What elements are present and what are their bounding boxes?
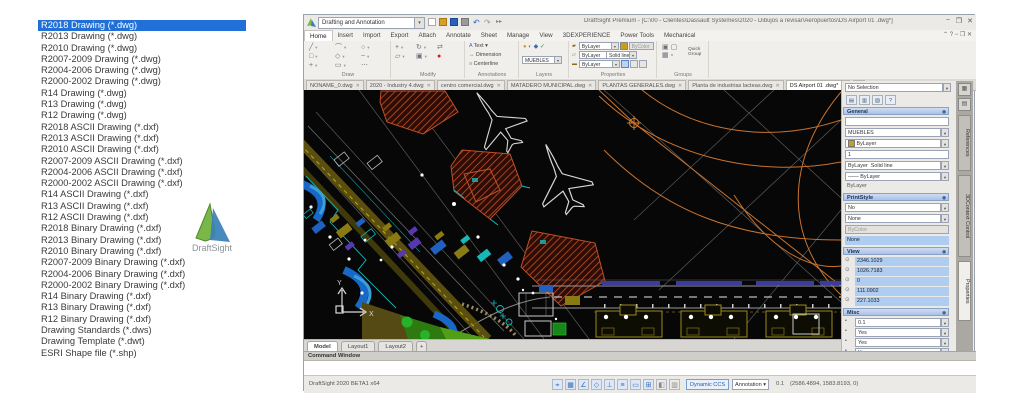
extra-bylayer-text: ByLayer xyxy=(847,183,867,189)
tab-power-tools[interactable]: Power Tools xyxy=(615,30,659,41)
vtab-properties[interactable]: Properties xyxy=(958,261,971,321)
lineweight-field-caret-icon[interactable] xyxy=(941,172,949,181)
misc-yes-field-2[interactable]: Yes xyxy=(855,338,941,347)
tab-3dexperience[interactable]: 3DEXPERIENCE xyxy=(558,30,616,41)
misc-row-icon: ▪ xyxy=(845,338,854,344)
delete-tool-icon[interactable]: ● xyxy=(437,52,458,61)
group-edit-icon[interactable]: ▢ xyxy=(671,44,678,51)
format-option[interactable]: R12 Drawing (*.dwg) xyxy=(38,110,250,121)
view-center-z: 0 xyxy=(855,277,949,286)
printstyle-row-3: ByColor xyxy=(845,225,949,234)
section-misc[interactable]: Misc xyxy=(843,308,949,316)
property-toggle-3-icon[interactable] xyxy=(639,60,647,68)
format-option[interactable]: R2007-2009 Binary Drawing (*.dxf) xyxy=(38,257,250,268)
minimize-button[interactable]: − xyxy=(946,17,950,24)
vtab-references[interactable]: References xyxy=(958,115,971,171)
command-window-header[interactable]: Command Window xyxy=(304,351,976,360)
circle-tool-icon[interactable]: ○ ▾ xyxy=(361,43,387,52)
trim-tool-icon[interactable]: ▣ ▾ xyxy=(416,52,437,61)
printstyle-row-2[interactable]: None xyxy=(845,214,941,223)
group-create-icon[interactable]: ▣ xyxy=(662,44,669,51)
groups-group-label: Groups xyxy=(658,72,708,78)
format-option[interactable]: R2013 Drawing (*.dwg) xyxy=(38,31,250,42)
bycolor-field: ByColor xyxy=(629,42,654,50)
format-option[interactable]: R13 Binary Drawing (*.dxf) xyxy=(38,302,250,313)
quick-group-button[interactable]: Quick Group xyxy=(688,47,708,57)
view-row-icon: ⊙ xyxy=(845,257,854,263)
lineweight-dropdown[interactable]: ByLayer xyxy=(579,60,613,68)
close-button[interactable]: ✕ xyxy=(967,17,973,25)
section-printstyle[interactable]: PrintStyle xyxy=(843,193,949,201)
app-logo-icon xyxy=(306,17,317,28)
format-option[interactable]: R14 Drawing (*.dwg) xyxy=(38,88,250,99)
misc-caret-1-icon[interactable] xyxy=(941,318,949,327)
format-option[interactable]: R2010 Drawing (*.dwg) xyxy=(38,43,250,54)
grid-toggle-icon[interactable]: ▦ xyxy=(565,379,576,390)
product-version-text: DraftSight 2020 BETA1 x64 xyxy=(309,381,380,387)
view-height: 111.0902 xyxy=(855,287,949,296)
tab-close-icon[interactable] xyxy=(497,83,501,89)
lineweight-caret-icon[interactable]: ▾ xyxy=(613,60,620,68)
open-file-icon[interactable] xyxy=(439,18,447,26)
polygon-tool-icon[interactable]: ◇ ▾ xyxy=(335,52,361,61)
layer-freeze-icon[interactable]: ◐ xyxy=(528,44,532,50)
format-option[interactable]: R2004-2006 Drawing (*.dwg) xyxy=(38,65,250,76)
format-option[interactable]: R2000-2002 ASCII Drawing (*.dxf) xyxy=(38,178,250,189)
format-option[interactable]: R2007-2009 Drawing (*.dwg) xyxy=(38,54,250,65)
tab-close-icon[interactable] xyxy=(356,83,360,89)
point-tool-icon[interactable]: + ▾ xyxy=(309,61,335,70)
clear-selection-icon[interactable]: ▧ xyxy=(872,95,883,105)
redo-icon[interactable]: ↷ xyxy=(484,17,491,28)
workspace-dropdown[interactable]: Drafting and Annotation xyxy=(318,17,419,29)
view-width: 227.1033 xyxy=(855,297,949,306)
title-bar: Drafting and Annotation ▾ ↶ ↷ ▸▸ DraftSi… xyxy=(304,15,976,31)
draftsight-logo: DraftSight xyxy=(188,200,244,256)
section-general[interactable]: General xyxy=(843,107,949,115)
ribbon-group-groups: ▣ ▢ ▦ ▫ Quick Group Groups xyxy=(658,41,709,78)
view-row-icon: ⊙ xyxy=(845,287,854,293)
lineweight-icon: ▬ xyxy=(572,61,579,67)
view-row-icon: ⊙ xyxy=(845,297,854,303)
linecolor-caret-icon[interactable]: ▾ xyxy=(612,42,619,50)
tab-sheet[interactable]: Sheet xyxy=(476,30,502,41)
format-option[interactable]: R2000-2002 Drawing (*.dwg) xyxy=(38,76,250,87)
scale-readout: 0.1 xyxy=(776,381,784,387)
mirror-tool-icon[interactable]: ⇄ xyxy=(437,43,458,52)
tab-close-icon[interactable] xyxy=(775,83,779,89)
section-view[interactable]: View xyxy=(843,247,949,255)
polar-toggle-icon[interactable]: ◇ xyxy=(591,379,602,390)
move-tool-icon[interactable]: + ▾ xyxy=(395,43,416,52)
centerline-tool-button[interactable]: ≡ Centerline xyxy=(469,61,518,70)
tab-export[interactable]: Export xyxy=(386,30,414,41)
misc-row-icon: ▪ xyxy=(845,318,854,324)
rotate-tool-icon[interactable]: ↻ ▾ xyxy=(416,43,437,52)
ribbon: ╱ ▾ ⌒ ▾ ○ ▾ □ ▾ ◇ ▾ ~ ▾ + ▾ ▭ ▾ ⋯ Draw +… xyxy=(304,41,976,80)
command-input[interactable] xyxy=(304,360,976,376)
format-option[interactable]: R2018 ASCII Drawing (*.dxf) xyxy=(38,122,250,133)
window-title: DraftSight Premium - [C:\00 - Clientes\D… xyxy=(584,18,914,24)
file-format-list: R2018 Drawing (*.dwg) R2013 Drawing (*.d… xyxy=(38,20,250,359)
linecolor-dropdown[interactable]: ByLayer xyxy=(579,42,612,50)
format-option[interactable]: R2004-2006 ASCII Drawing (*.dxf) xyxy=(38,167,250,178)
offset-tool-icon[interactable]: ▱ ▾ xyxy=(395,52,416,61)
annotation-scale-dropdown[interactable]: Annotation ▾ xyxy=(732,379,769,390)
status-bar: DraftSight 2020 BETA1 x64 ⌖ ▦ ∠ ◇ ⊥ ≡ ▭ … xyxy=(304,375,976,393)
format-option[interactable]: R12 Binary Drawing (*.dxf) xyxy=(38,314,250,325)
spline-tool-icon[interactable]: ~ ▾ xyxy=(361,52,387,61)
format-option[interactable]: R13 Drawing (*.dwg) xyxy=(38,99,250,110)
lineweight-field[interactable]: —— ByLayer xyxy=(845,172,941,181)
linestyle-caret-icon[interactable]: ▾ xyxy=(630,51,637,59)
ribbon-group-modify: + ▾ ↻ ▾ ⇄ ▱ ▾ ▣ ▾ ● Modify xyxy=(392,41,465,78)
properties-group-label: Properties xyxy=(570,72,656,78)
misc-caret-2-icon[interactable] xyxy=(941,328,949,337)
misc-caret-3-icon[interactable] xyxy=(941,338,949,347)
dynamic-ccs-button[interactable]: Dynamic CCS xyxy=(686,379,729,390)
format-option[interactable]: R2007-2009 ASCII Drawing (*.dxf) xyxy=(38,156,250,167)
layer-field[interactable]: MUEBLES xyxy=(845,128,941,137)
axis-x-label: X xyxy=(369,311,374,318)
linestyle2-field[interactable]: Solid line xyxy=(607,51,630,59)
new-file-icon[interactable] xyxy=(428,18,436,26)
tab-annotate[interactable]: Annotate xyxy=(441,30,476,41)
maximize-button[interactable]: ❐ xyxy=(956,17,962,25)
workspace-dropdown-caret-icon[interactable]: ▾ xyxy=(414,17,425,29)
drawing-canvas[interactable]: Y X xyxy=(304,90,841,339)
arc-tool-icon[interactable]: ⌒ ▾ xyxy=(335,43,361,52)
linescale-field[interactable]: 1 xyxy=(845,150,949,159)
help-icon[interactable]: ? xyxy=(885,95,896,105)
lineweight-toggle-icon[interactable]: ▭ xyxy=(630,379,641,390)
layer-field-caret-icon[interactable] xyxy=(941,128,949,137)
select-entities-icon[interactable]: ▤ xyxy=(846,95,857,105)
color-swatch-icon[interactable] xyxy=(620,42,628,50)
screenshot-root: R2018 Drawing (*.dwg) R2013 Drawing (*.d… xyxy=(0,0,1024,415)
ribbon-group-layers: ● ◐ ◆ ✓ MUEBLES ▾ Layers xyxy=(520,41,569,78)
undo-icon[interactable]: ↶ xyxy=(473,17,480,28)
format-option[interactable]: ESRI Shape file (*.shp) xyxy=(38,348,250,359)
draw-group-label: Draw xyxy=(306,72,390,78)
view-center-y: 1026.7183 xyxy=(855,267,949,276)
save-icon[interactable] xyxy=(450,18,458,26)
ribbon-group-properties: ▰ ByLayer ▾ ByColor ▱ ByLayer Solid line… xyxy=(570,41,657,78)
print-icon[interactable] xyxy=(461,18,469,26)
quick-select-icon[interactable]: ▥ xyxy=(859,95,870,105)
tab-import[interactable]: Import xyxy=(358,30,386,41)
color-chip-icon xyxy=(848,140,855,147)
tab-manage[interactable]: Manage xyxy=(502,30,534,41)
window-secondary-controls[interactable]: ⌃ ? − ❐ ✕ xyxy=(943,30,972,41)
tab-mechanical[interactable]: Mechanical xyxy=(659,30,700,41)
layer-lock-icon[interactable]: ◆ xyxy=(534,44,539,50)
printstyle-caret-icon[interactable] xyxy=(941,203,949,212)
misc-row-icon: ▪ xyxy=(845,328,854,334)
coordinates-readout: (2586.4894, 1583.8193, 0) xyxy=(790,381,858,387)
axis-y-label: Y xyxy=(337,280,342,287)
more-draw-tools-icon[interactable]: ⋯ xyxy=(361,61,387,70)
printstyle-row-4[interactable]: None xyxy=(845,236,949,245)
layer-check-icon[interactable]: ✓ xyxy=(540,44,545,50)
view-row-icon: ⊙ xyxy=(845,267,854,273)
draftsight-logo-text: DraftSight xyxy=(192,243,233,253)
general-empty-field[interactable] xyxy=(845,117,949,126)
printstyle-row-1[interactable]: No xyxy=(845,203,941,212)
tab-close-icon[interactable] xyxy=(678,83,682,89)
etrack-toggle-icon[interactable]: ≡ xyxy=(617,379,628,390)
annotations-group-label: Annotations xyxy=(466,72,518,78)
linestyle-dropdown[interactable]: ByLayer xyxy=(579,51,607,59)
units-icon[interactable]: ▥ xyxy=(669,379,680,390)
group-toggle-icon[interactable]: ▫ xyxy=(671,52,673,59)
draftsight-logo-mark: DraftSight xyxy=(188,200,244,256)
format-option-selected[interactable]: R2018 Drawing (*.dwg) xyxy=(38,20,246,31)
ribbon-group-annotations: A Text ▾ ↔ Dimension ≡ Centerline Annota… xyxy=(466,41,519,78)
ribbon-group-draw: ╱ ▾ ⌒ ▾ ○ ▾ □ ▾ ◇ ▾ ~ ▾ + ▾ ▭ ▾ ⋯ Draw xyxy=(306,41,391,78)
esnap-toggle-icon[interactable]: ⊥ xyxy=(604,379,615,390)
palette-tab-strip: ▦ ▤ References 3DContext Control Propert… xyxy=(956,81,973,351)
selection-dropdown-caret-icon[interactable] xyxy=(943,83,951,92)
tab-close-icon[interactable] xyxy=(427,83,431,89)
layer-dropdown[interactable]: MUEBLES xyxy=(522,56,555,64)
color-field[interactable]: ByLayer xyxy=(845,139,941,148)
group-explode-icon[interactable]: ▦ xyxy=(662,52,669,59)
format-option[interactable]: Drawing Template (*.dwt) xyxy=(38,336,250,347)
text-tool-button[interactable]: A Text ▾ xyxy=(469,43,518,52)
format-option[interactable]: R2004-2006 Binary Drawing (*.dxf) xyxy=(38,269,250,280)
linestyle-field-caret-icon[interactable] xyxy=(941,161,949,170)
draftsight-window: Drafting and Annotation ▾ ↶ ↷ ▸▸ DraftSi… xyxy=(303,14,975,391)
property-toggle-2-icon[interactable] xyxy=(630,60,638,68)
format-option[interactable]: R14 Binary Drawing (*.dxf) xyxy=(38,291,250,302)
ccs-lock-icon[interactable]: ◧ xyxy=(656,379,667,390)
gate-buildings xyxy=(596,305,832,337)
linestyle-field[interactable]: ByLayer Solid line xyxy=(845,161,941,170)
color-field-caret-icon[interactable] xyxy=(941,139,949,148)
annotation-scale-field[interactable]: 0.1 xyxy=(855,318,941,327)
format-option[interactable]: R2000-2002 Binary Drawing (*.dxf) xyxy=(38,280,250,291)
property-toggle-1-icon[interactable] xyxy=(621,60,629,68)
printarea-toggle-icon[interactable]: ⊞ xyxy=(643,379,654,390)
tab-close-icon[interactable] xyxy=(588,83,592,89)
modify-group-label: Modify xyxy=(392,72,464,78)
misc-yes-field-1[interactable]: Yes xyxy=(855,328,941,337)
format-option[interactable]: R2010 ASCII Drawing (*.dxf) xyxy=(38,144,250,155)
rectangle-tool-icon[interactable]: □ ▾ xyxy=(309,52,335,61)
layer-state-icon[interactable]: ● xyxy=(523,44,527,50)
tab-attach[interactable]: Attach xyxy=(413,30,441,41)
view-center-x: 2346.1029 xyxy=(855,257,949,266)
quick-access-more-icon[interactable]: ▸▸ xyxy=(496,17,502,28)
format-option[interactable]: Drawing Standards (*.dws) xyxy=(38,325,250,336)
format-option[interactable]: R2013 ASCII Drawing (*.dxf) xyxy=(38,133,250,144)
tab-insert[interactable]: Insert xyxy=(333,30,358,41)
vtab-3dcontext-control[interactable]: 3DContext Control xyxy=(958,175,971,257)
linestyle-icon: ▱ xyxy=(572,52,579,58)
linecolor-icon: ▰ xyxy=(572,43,579,49)
dimension-tool-button[interactable]: ↔ Dimension xyxy=(469,52,518,61)
selection-dropdown[interactable]: No Selection xyxy=(845,83,943,92)
palette-dock-icon[interactable]: ▦ xyxy=(958,83,971,96)
printstyle-caret2-icon[interactable] xyxy=(941,214,949,223)
view-row-icon: ⊙ xyxy=(845,277,854,283)
properties-panel: No Selection ▤ ▥ ▧ ? General MUEBLES ByL… xyxy=(841,81,956,351)
layers-group-label: Layers xyxy=(520,72,568,78)
layer-dropdown-caret-icon[interactable]: ▾ xyxy=(555,56,562,64)
ortho-toggle-icon[interactable]: ∠ xyxy=(578,379,589,390)
snap-toggle-icon[interactable]: ⌖ xyxy=(552,379,563,390)
tab-view[interactable]: View xyxy=(534,30,557,41)
line-tool-icon[interactable]: ╱ ▾ xyxy=(309,43,335,52)
palette-pin-icon[interactable]: ▤ xyxy=(958,98,971,111)
hatch-tool-icon[interactable]: ▭ ▾ xyxy=(335,61,361,70)
